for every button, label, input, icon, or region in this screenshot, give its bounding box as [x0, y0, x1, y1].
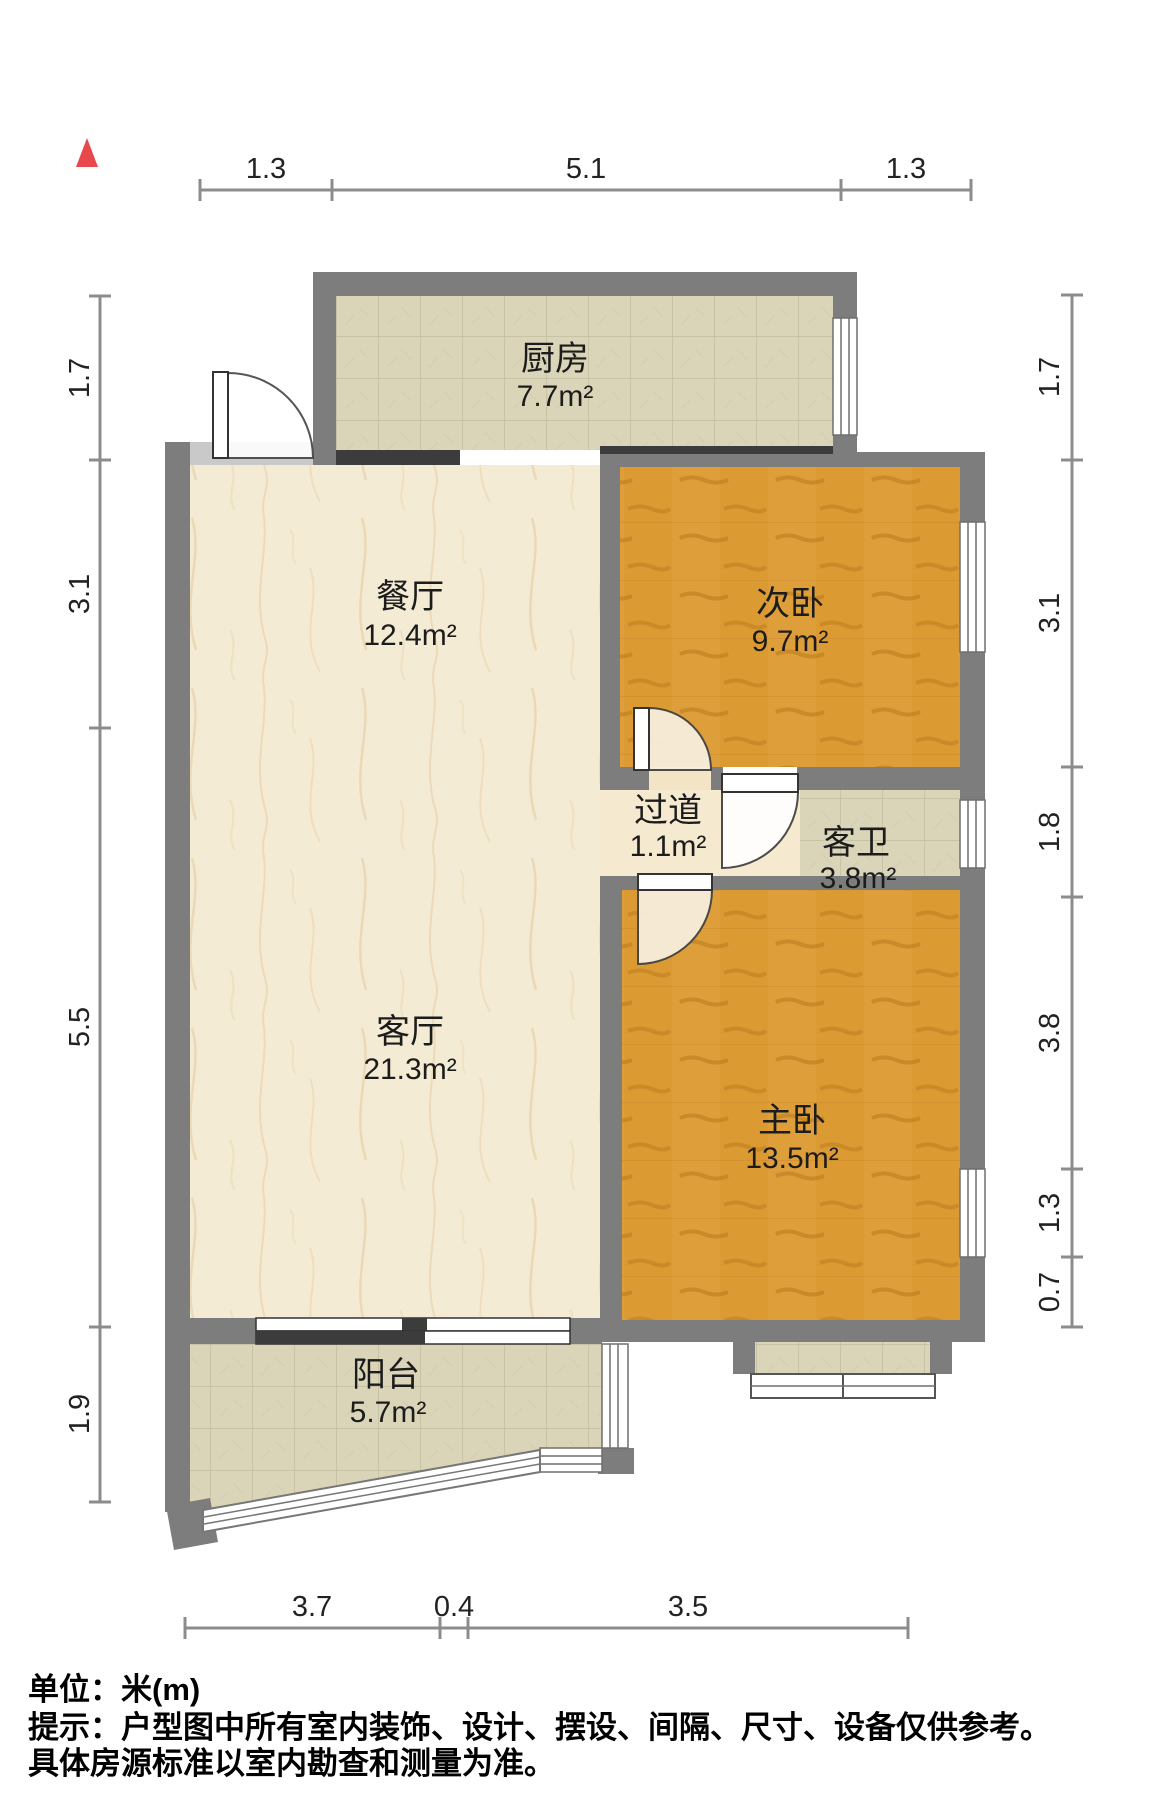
- master-bottom-wall: [600, 1320, 985, 1342]
- dim-left-0: 1.7: [64, 358, 96, 398]
- dining-label: 餐厅: [376, 578, 444, 616]
- balcony-wall-right-stub: [570, 1318, 602, 1344]
- dim-top-2: 1.3: [886, 153, 926, 185]
- footer-unit: 单位：米(m): [28, 1672, 200, 1707]
- bay-right-stub: [930, 1342, 952, 1374]
- master-bedroom-area: 13.5m²: [745, 1142, 838, 1175]
- dim-bottom-0: 3.7: [292, 1591, 332, 1623]
- living-label: 客厅: [376, 1013, 444, 1051]
- dining-area: 12.4m²: [363, 619, 456, 652]
- dim-right-2: 1.8: [1034, 812, 1066, 852]
- dim-bottom-1: 0.4: [434, 1591, 474, 1623]
- floor-plan-canvas: 厨房 7.7m² 餐厅 12.4m² 次卧 9.7m² 过道 1.1m² 客卫 …: [0, 0, 1172, 1816]
- kitchen-window: [833, 318, 857, 435]
- kitchen-dining-rail: [336, 450, 460, 465]
- kitchen-bedroom-edge: [600, 446, 833, 454]
- dim-right-3: 3.8: [1034, 1013, 1066, 1053]
- dim-right-5: 0.7: [1034, 1272, 1066, 1312]
- balcony-slider-bottom-dark: [256, 1331, 425, 1344]
- balcony-wall-left-stub: [190, 1318, 256, 1344]
- bathroom-label: 客卫: [822, 824, 890, 862]
- hallway-area: 1.1m²: [630, 830, 707, 863]
- second-bedroom-area: 9.7m²: [752, 625, 829, 658]
- kitchen-top-wall: [313, 272, 857, 296]
- left-outer-wall: [165, 442, 190, 1512]
- balcony-label: 阳台: [352, 1356, 420, 1394]
- compass-north-icon: [76, 138, 98, 167]
- kitchen-passage-opening: [460, 450, 600, 465]
- dim-right-1: 3.1: [1034, 593, 1066, 633]
- bay-left-stub: [733, 1342, 755, 1374]
- dim-left-1: 3.1: [64, 574, 96, 614]
- living-area: 21.3m²: [363, 1053, 456, 1086]
- dim-right-4: 1.3: [1034, 1193, 1066, 1233]
- kitchen-area: 7.7m²: [517, 380, 594, 413]
- footer-hint2: 具体房源标准以室内勘查和测量为准。: [28, 1746, 555, 1781]
- second-bedroom-top-wall: [600, 452, 985, 467]
- dim-top-1: 5.1: [566, 153, 606, 185]
- bathroom-area: 3.8m²: [820, 862, 897, 895]
- footer-notes: 单位：米(m) 提示：户型图中所有室内装饰、设计、摆设、间隔、尺寸、设备仅供参考…: [28, 1672, 1051, 1781]
- dining-bedroom-wall: [600, 452, 620, 790]
- balcony-slider-top-dark: [402, 1318, 427, 1331]
- second-bedroom-label: 次卧: [756, 585, 824, 623]
- balcony-corner-stub: [598, 1448, 634, 1474]
- master-left-wall: [600, 876, 622, 1342]
- bathroom-window: [960, 800, 985, 868]
- kitchen-left-wall: [313, 272, 336, 465]
- bay-window: [751, 1374, 935, 1398]
- footer-hint: 提示：户型图中所有室内装饰、设计、摆设、间隔、尺寸、设备仅供参考。: [28, 1710, 1051, 1745]
- dim-right-0: 1.7: [1034, 357, 1066, 397]
- dim-left-3: 1.9: [64, 1394, 96, 1434]
- master-bedroom-label: 主卧: [758, 1102, 826, 1140]
- kitchen-label: 厨房: [521, 340, 589, 378]
- balcony-area: 5.7m²: [350, 1396, 427, 1429]
- balcony-corner-window: [540, 1448, 602, 1472]
- dim-bottom-2: 3.5: [668, 1591, 708, 1623]
- master-bedroom-window: [960, 1169, 985, 1257]
- dim-top-0: 1.3: [246, 153, 286, 185]
- hallway-label: 过道: [634, 792, 702, 830]
- entry-door: [213, 372, 313, 458]
- dim-left-2: 5.5: [64, 1007, 96, 1047]
- balcony-side-window: [602, 1344, 628, 1448]
- second-bedroom-window: [960, 522, 985, 652]
